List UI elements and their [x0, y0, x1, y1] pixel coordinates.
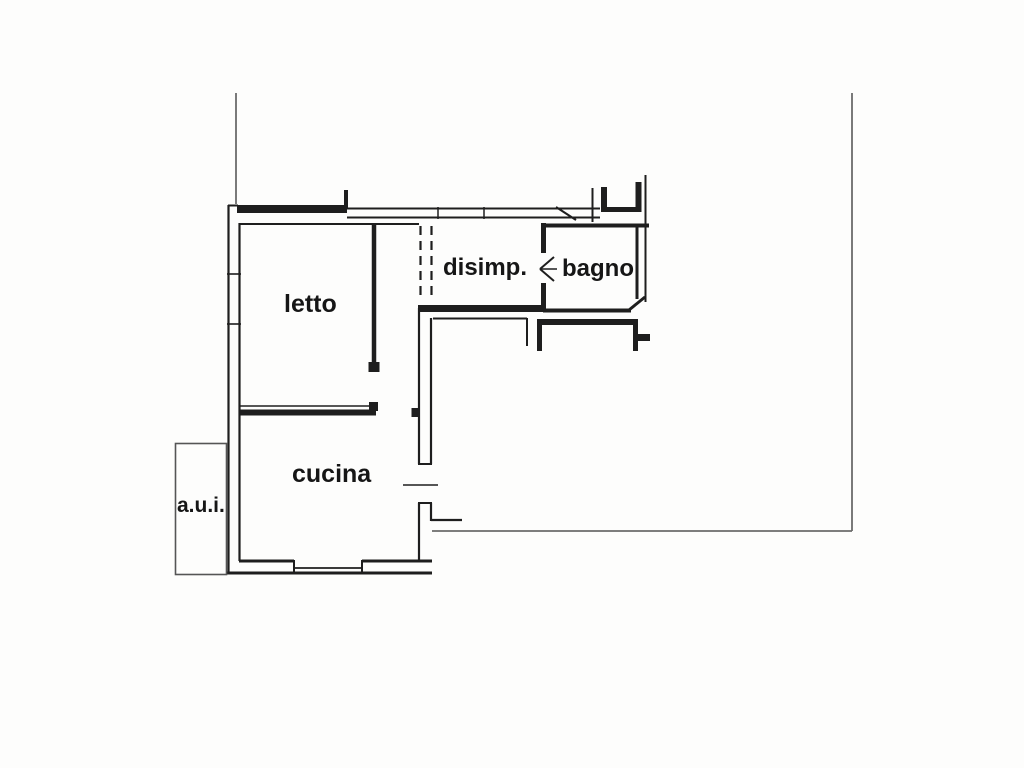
floor-plan-canvas: letto disimp. bagno cucina a.u.i.: [0, 0, 1024, 768]
bagno-label: bagno: [562, 255, 634, 282]
bagno-walls: [543, 175, 649, 311]
door-latch-notch: [412, 408, 420, 417]
floor-plan-page: letto disimp. bagno cucina a.u.i.: [0, 0, 1024, 768]
letto-label: letto: [284, 290, 337, 318]
room-labels: letto disimp. bagno cucina a.u.i.: [177, 254, 634, 517]
partition-end-knob: [369, 402, 378, 411]
partition-foot: [369, 362, 380, 372]
disimp-label: disimp.: [443, 254, 527, 281]
balcony-right-tick: [638, 334, 650, 341]
cucina-walls: [227, 308, 462, 573]
balcony-walls: [537, 322, 650, 351]
letto-cucina-partition: [240, 402, 378, 413]
letto-top-wall: [228, 190, 600, 220]
aui-label: a.u.i.: [177, 494, 225, 517]
entrance-recess: [593, 182, 641, 222]
letto-walls: [227, 205, 419, 573]
bagno-door-swing-icon: [540, 257, 557, 281]
cucina-label: cucina: [292, 460, 372, 488]
disimp-walls: [418, 226, 545, 346]
